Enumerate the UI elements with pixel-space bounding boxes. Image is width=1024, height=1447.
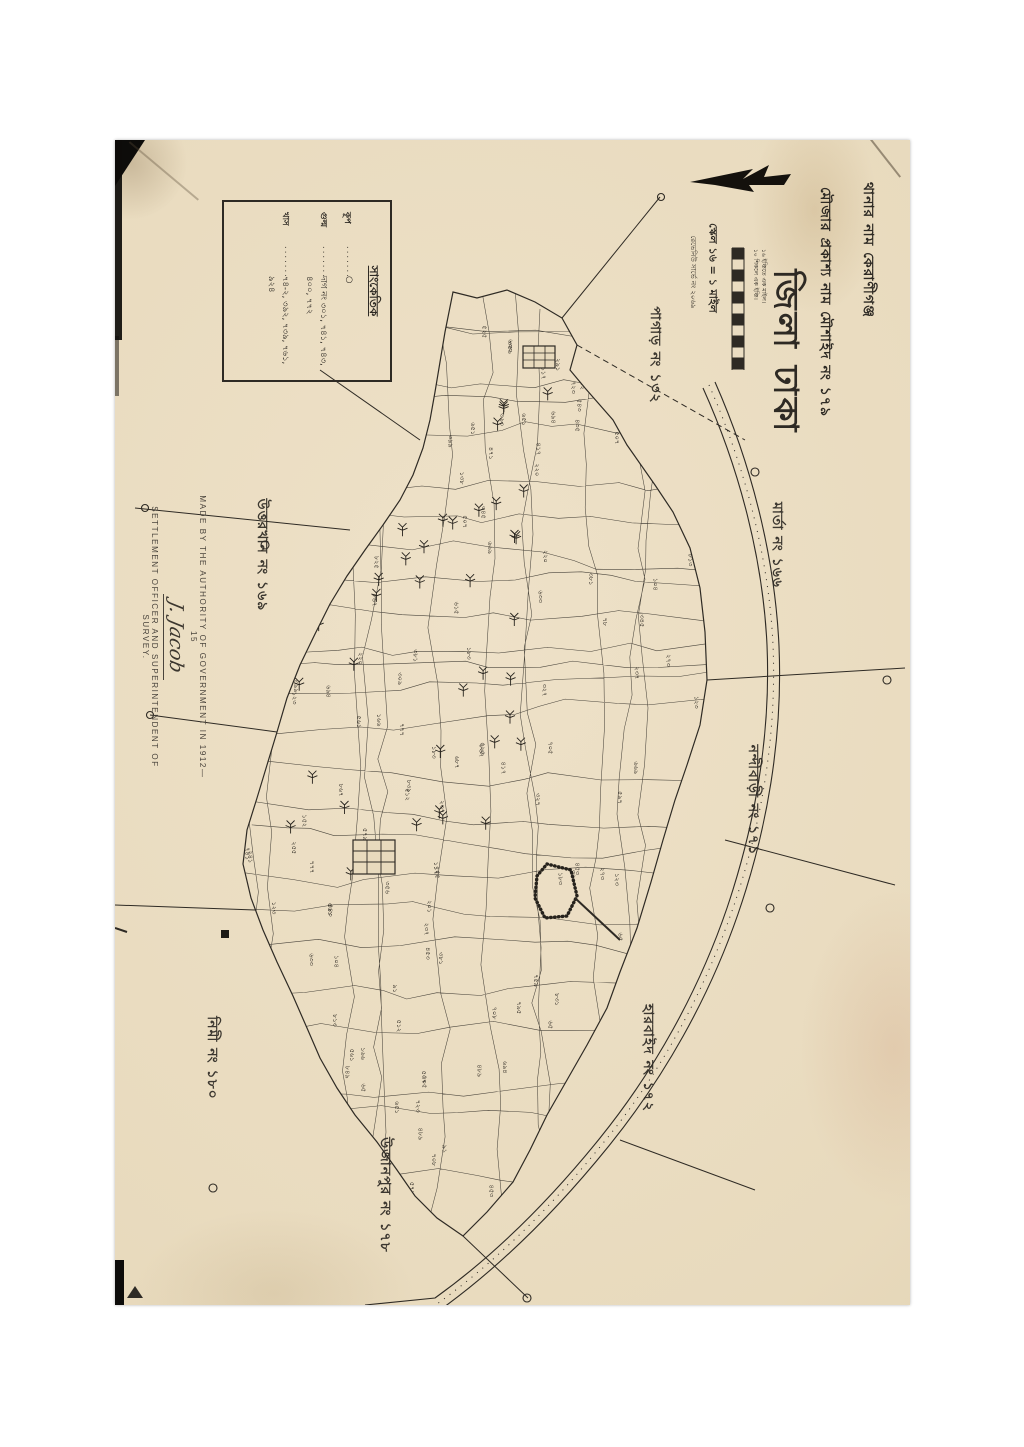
thana-name-line: থানার নাম কেরাণীগঞ্জ	[856, 182, 880, 318]
plot-number: ৪৩৫	[298, 489, 306, 502]
scan-edge-strip	[115, 140, 122, 340]
plot-number: ১০৪	[316, 555, 324, 568]
plot-number: ৬৬৯	[632, 761, 640, 774]
plot-number: ৮২৫	[662, 893, 670, 906]
plot-number: ২৭৩	[665, 654, 673, 667]
plot-number: ৪৭১	[487, 447, 495, 460]
revenue-survey-number: রেভেনিউ সার্ভে নং ২০৬৯	[687, 235, 699, 308]
plot-number: ১৬৬	[359, 1047, 367, 1060]
legend-row-khas: খাস ......... ৭৪-২, ৩৯২, ৭৩৯, ৭৬১, ৯২৪	[264, 212, 292, 370]
plot-number: ৬৮৭	[280, 392, 288, 405]
plot-number: ৫৯৭	[384, 475, 392, 488]
plot-number: ৬৬৯	[486, 541, 494, 554]
plot-number: ৫৪৩	[576, 399, 584, 412]
plot-number: ৪৫৩	[487, 1185, 495, 1198]
plot-number: ৩২৭	[541, 684, 549, 697]
plot-number: ৫২৫	[673, 437, 681, 450]
plot-number: ৭০৮	[491, 1007, 499, 1020]
plot-number: ৫৬১	[326, 903, 334, 916]
plot-number: ২৩৭	[633, 667, 641, 680]
neighbor-label-nandibari: নন্দীবাড়ী নং ১৭১	[741, 745, 765, 856]
plot-number: ৭৭৭	[398, 723, 406, 736]
river-road	[365, 382, 780, 1305]
plot-number: ১৬৬	[375, 714, 383, 727]
map-sheet: ৬৫১২৩২৪১৭৮২২০৩৫৬৫১২৬৯৪৭০৮৮২৫৯১১০৪১১৭১৩৮১…	[115, 140, 910, 1305]
attribution-line-1: MADE BY THE AUTHORITY OF GOVERNMENT IN 1…	[189, 492, 207, 782]
plot-number: ৭৮	[629, 304, 637, 313]
plot-number: ৬৫	[547, 1021, 555, 1029]
plot-number: ৫০৭	[461, 515, 469, 528]
neighbor-label-ujanpur: উজানপুর নং ১৭৮	[373, 1137, 397, 1252]
plot-number: ৩৯৯	[447, 435, 455, 448]
plot-number: ২৪১	[622, 382, 630, 395]
legend-label: কূপ	[340, 212, 354, 246]
plot-number: ৮১৩	[331, 1014, 339, 1027]
scan-edge-strip	[115, 336, 119, 396]
plot-number: ২২০	[533, 464, 541, 477]
plot-number: ২১৯	[647, 1142, 655, 1155]
plot-number: ১১৭	[293, 1193, 301, 1206]
plot-number: ৩৪৫	[480, 506, 488, 519]
plot-number: ১৩৮	[458, 472, 466, 485]
plot-number: ২২০	[541, 550, 549, 563]
scan-edge-strip	[115, 1260, 124, 1305]
officer-signature: J. Jacob	[165, 490, 187, 785]
plot-number: ৮৩১	[405, 780, 413, 793]
plot-number: ৭৮	[691, 470, 699, 479]
plot-number: ২৫৫	[619, 1035, 627, 1048]
plot-number: ৭০৫	[421, 1076, 429, 1089]
plot-number: ৯১	[441, 1145, 449, 1153]
plot-number: ১৫২	[425, 397, 433, 410]
plot-number: ১৫২	[604, 358, 612, 371]
plot-number: ৮২৫	[372, 556, 380, 569]
plot-number: ৮৪৯	[494, 1199, 502, 1212]
plot-number: ৩৬৩	[630, 1145, 638, 1158]
plot-number: ১৮৩	[465, 647, 473, 660]
plot-number: ১৫২	[301, 815, 309, 828]
plot-number: ৪১৭	[500, 762, 508, 775]
neighbor-label-marta: মার্তা নং ১৬৬	[765, 502, 789, 588]
plot-number: ৫৬১	[348, 1049, 356, 1062]
legend-dots: .........	[282, 246, 292, 276]
plot-number: ২৭৩	[599, 867, 607, 880]
plot-number: ৭৫৯	[532, 974, 540, 987]
plot-number: ৪৩৫	[573, 419, 581, 432]
plot-number: ৬৯৪	[325, 685, 333, 698]
plot-number: ১৬৬	[660, 987, 668, 1000]
scale-statement: স্কেল ১৬ = ১ মাইল	[703, 223, 722, 313]
attribution-line-2: SETTLEMENT OFFICER AND SUPERINTENDENT OF…	[141, 492, 159, 782]
plot-number: ৬৩৩	[506, 339, 514, 352]
plot-number: ২৫৫	[434, 866, 442, 879]
plot-number: ৮৪৯	[710, 697, 718, 710]
plot-number: ২৭৩	[697, 1024, 705, 1037]
plot-number: ৭৫৯	[333, 452, 341, 465]
scale-note-1: ১৬ ইঞ্চিতে এক মাইল।	[759, 249, 767, 303]
plot-number: ৫৪৩	[392, 457, 400, 470]
plot-number: ৩৮১	[587, 573, 595, 586]
plot-number: ১২৩	[291, 692, 299, 705]
plot-number: ৫২৫	[480, 325, 488, 338]
plot-number: ৩৪৫	[689, 1098, 697, 1111]
plot-number: ২৩৭	[438, 800, 446, 813]
plot-number: ১৮৩	[430, 746, 438, 759]
plot-number: ৬৯৪	[549, 411, 557, 424]
plot-number: ৭৮	[601, 618, 609, 627]
plot-number: ৭৯৫	[709, 1179, 717, 1192]
legend-title: সাংকেতিক	[362, 212, 382, 370]
north-arrow	[690, 165, 791, 192]
legend-box: সাংকেতিক কূপ ......... ○ গুল্ম .........…	[222, 200, 392, 382]
plot-number: ৩০৯	[396, 672, 404, 685]
plot-number: ৯১	[601, 1035, 609, 1043]
plot-number: ৭৭৭	[308, 861, 316, 874]
plot-number: ৮১৩	[704, 909, 712, 922]
plot-number: ৭০৮	[235, 956, 243, 969]
plot-number: ৫৬১	[355, 716, 363, 729]
plot-number: ৬৯৪	[501, 1061, 509, 1074]
plot-number: ৮৬৭	[477, 745, 485, 758]
plot-number: ৭৫৯	[661, 406, 669, 419]
plot-number: ১০৪	[652, 578, 660, 591]
plot-number: ৭৯৫	[233, 597, 241, 610]
plot-number: ৬১৫	[606, 1101, 614, 1114]
plot-number: ৬৬৯	[259, 693, 267, 706]
plot-number: ৭২৩	[569, 381, 577, 394]
plot-number: ২০১	[425, 900, 433, 913]
plot-number: ৭০৫	[547, 742, 555, 755]
legend-value: ৭৪-২, ৩৯২, ৭৩৯, ৭৬১, ৯২৪	[264, 276, 292, 370]
plot-number: ৩৬৩	[498, 413, 506, 426]
plot-number: ১৮৩	[556, 872, 564, 885]
neighbor-label-harbaid: হারবাইদ নং ১৭২	[636, 1004, 660, 1112]
plot-number: ৩৪৫	[638, 615, 646, 628]
plot-number: ১১৭	[539, 367, 547, 380]
plot-number: ৪৩৫	[330, 385, 338, 398]
plot-number: ২৫৫	[290, 842, 298, 855]
plot-number: ৬৫	[403, 402, 411, 410]
plot-number: ৮৬৭	[337, 784, 345, 797]
plot-number: ৩২৭	[712, 654, 720, 667]
plot-number: ৫১২	[395, 1020, 403, 1033]
plot-number: ৬৫১	[520, 413, 528, 426]
plot-number: ৩৫৬	[711, 607, 719, 620]
legend-dots: .........	[344, 246, 354, 276]
neighbor-label-pagar: পাগাড় নং ১৩২	[643, 306, 667, 403]
plot-number: ৬৮৭	[453, 756, 461, 769]
neighbor-label-nimi: নিমী নং ১৮০	[200, 1016, 224, 1100]
plot-number: ৬৮৭	[328, 1089, 336, 1102]
legend-row-shrub: গুল্ম ......... দাগ নং ৩০১, ৭৪১, ৭৪৩, ৪০…	[302, 212, 330, 370]
plot-number: ৬১৫	[452, 602, 460, 615]
legend-label: গুল্ম	[316, 212, 330, 246]
plot-number: ৯১	[391, 984, 399, 992]
plot-number: ৮২৫	[241, 402, 249, 415]
plot-number: ৪৮৯	[476, 1064, 484, 1077]
plot-number: ৪১৭	[326, 1084, 334, 1097]
legend-row-well: কূপ ......... ○	[340, 212, 354, 370]
legend-dots: .........	[320, 246, 330, 276]
plot-number: ৫০৭	[613, 431, 621, 444]
plot-number: ৫৯৭	[616, 791, 624, 804]
legend-value: দাগ নং ৩০১, ৭৪১, ৭৪৩, ৪০০, ৭৭২	[302, 276, 330, 370]
mouza-name-line: মৌজার প্রকাশ্য নাম মৌশাইদ নং ১৭৯	[813, 187, 837, 417]
plot-number: ৭২৩	[414, 1100, 422, 1113]
plot-number: ১২৩	[692, 696, 700, 709]
plot-number: ১৩৮	[638, 453, 646, 466]
plot-number: ৪৫৩	[424, 947, 432, 960]
plot-number: ২০১	[642, 925, 650, 938]
plot-number: ৭০৮	[430, 1154, 438, 1167]
plot-number: ২২০	[357, 652, 365, 665]
plot-number: ১২৩	[270, 902, 278, 915]
plot-number: ৫৭৯	[247, 735, 255, 748]
signature-rule	[163, 594, 164, 680]
legend-label: খাস	[278, 212, 292, 246]
plot-number: ৩৫৬	[384, 881, 392, 894]
plot-number: ২১৯	[625, 319, 633, 332]
plot-number: ৪১৭	[535, 443, 543, 456]
plot-number: ৮৩১	[560, 1101, 568, 1114]
plot-number: ৮৮৫	[240, 579, 248, 592]
plot-number: ৪৫৩	[574, 863, 582, 876]
plot-number: ৭৯৫	[515, 1001, 523, 1014]
plot-number: ৮৮৫	[605, 346, 613, 359]
plot-number: ৬৫১	[469, 422, 477, 435]
plot-number: ৩৮১	[412, 649, 420, 662]
plot-number: ২৪১	[274, 640, 282, 653]
scanned-map-page: ৬৫১২৩২৪১৭৮২২০৩৫৬৫১২৬৯৪৭০৮৮২৫৯১১০৪১১৭১৩৮১…	[0, 0, 1024, 1447]
tree-symbols	[286, 387, 553, 880]
plot-number: ৩৯৯	[449, 1234, 457, 1247]
neighbor-label-uttarkhan: উত্তরখান নং ১৬৯	[250, 499, 274, 612]
plot-number: ৩৮১	[437, 952, 445, 965]
plot-number: ৮৩১	[553, 993, 561, 1006]
plot-number: ১০৪	[333, 955, 341, 968]
plot-number: ১২৩	[613, 873, 621, 886]
plot-number: ২৯১	[353, 442, 361, 455]
plot-number: ২১৯	[673, 982, 681, 995]
plot-number: ৬৫	[360, 1084, 368, 1092]
plot-number: ৪৮৯	[416, 1128, 424, 1141]
parcel-mesh	[170, 282, 811, 1297]
plot-number: ৩২৭	[534, 793, 542, 806]
plot-number: ৮৬৭	[371, 594, 379, 607]
plot-number: ৮৪৯	[343, 1066, 351, 1079]
plot-number: ২৩৭	[423, 923, 431, 936]
plot-number: ৭২৩	[246, 423, 254, 436]
plot-number: ৬৫১	[393, 1101, 401, 1114]
scale-bar-notes: ১৬ ইঞ্চিতে এক মাইল। ১০ শিকলে এক ইঞ্চি।	[751, 249, 767, 303]
attribution-block: MADE BY THE AUTHORITY OF GOVERNMENT IN 1…	[123, 492, 207, 782]
plot-number: ৭০৫	[713, 1200, 721, 1213]
plot-number: ৬৩৩	[537, 590, 545, 603]
scale-note-2: ১০ শিকলে এক ইঞ্চি।	[751, 249, 759, 303]
scale-bar	[732, 248, 744, 370]
plot-number: ৬৩৩	[308, 953, 316, 966]
plot-number: ৩০৯	[531, 1174, 539, 1187]
plot-number: ৭৭৭	[684, 518, 692, 531]
well-symbol-icon: ○	[344, 276, 354, 370]
plot-number: ৫৯৭	[275, 427, 283, 440]
